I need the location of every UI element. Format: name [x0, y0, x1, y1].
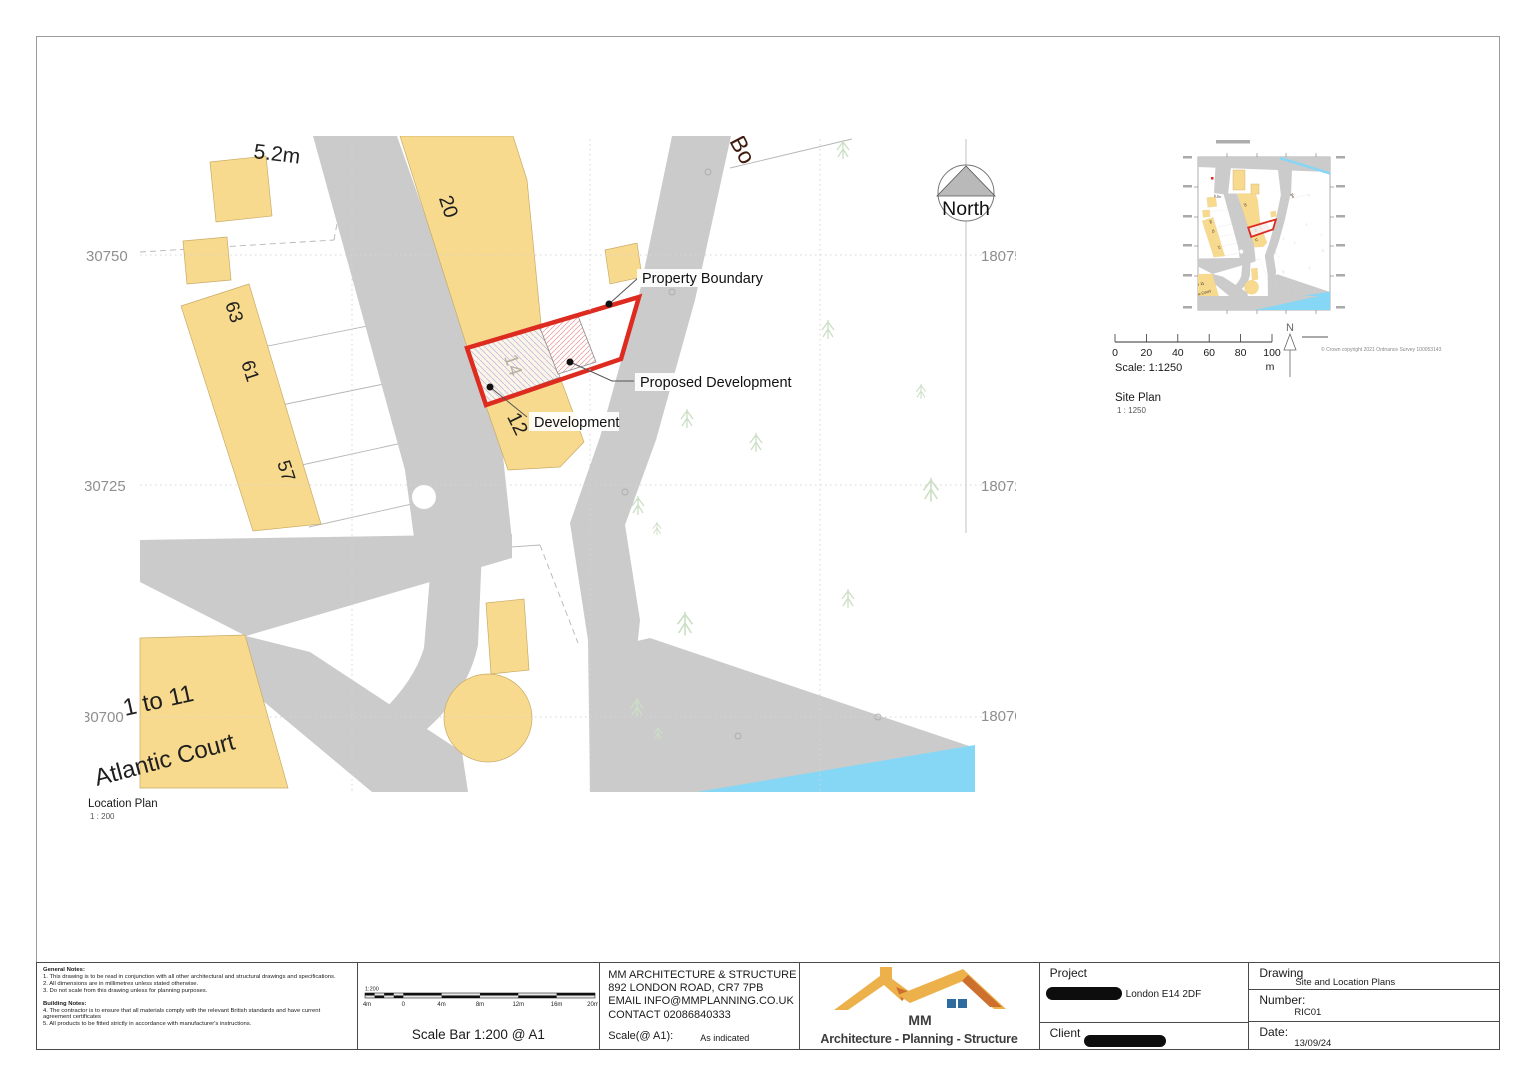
grid-label: 180750: [981, 248, 1016, 265]
scale-tick: 20m: [587, 1002, 598, 1008]
notes-panel: General Notes: 1. This drawing is to be …: [37, 963, 358, 1049]
company-email: EMAIL INFO@MMPLANNING.CO.UK: [608, 995, 799, 1008]
building-note: 5. All products to be fitted strictly in…: [43, 1021, 351, 1028]
grid-label: 180725: [981, 478, 1016, 495]
grid-label: 30700: [82, 709, 124, 726]
site-plan-scale: 1 : 1250: [1117, 406, 1146, 415]
inset-tick: 0: [1112, 347, 1118, 359]
general-note: 2. All dimensions are in millimetres unl…: [43, 981, 351, 988]
inset-tick: 40: [1172, 347, 1184, 359]
drawing-sheet: 5.2m 20 63 61 57 14 12 Bo 1 to 11 Atlant…: [0, 0, 1536, 1086]
scale-bar-graphic: 1:200 4m 0 4m 8m 12m 16m 20m: [362, 985, 598, 1019]
general-note: 3. Do not scale from this drawing unless…: [43, 988, 351, 995]
location-plan-caption: Location Plan: [88, 798, 158, 810]
company-logo-icon: MM Architecture - Planning - Structure: [800, 963, 1038, 1049]
date-row: Date: 13/09/24: [1249, 1022, 1499, 1049]
inset-scale-text: Scale: 1:1250: [1115, 362, 1182, 374]
drawing-number: RIC01: [1294, 1007, 1321, 1018]
project-panel: Project London E14 2DF Client: [1040, 963, 1250, 1049]
company-address: 892 LONDON ROAD, CR7 7PB: [608, 982, 799, 995]
property-boundary-label: Property Boundary: [642, 271, 764, 287]
scale-tick: 0: [401, 1002, 405, 1008]
grid-label: 30750: [86, 248, 128, 265]
building-note: 4. The contractor is to ensure that all …: [43, 1008, 351, 1015]
logo-name: MM: [908, 1012, 931, 1028]
redacted-client-name: [1084, 1035, 1166, 1047]
logo-tagline: Architecture - Planning - Structure: [820, 1032, 1017, 1046]
inset-scale-bar: 0 20 40 60 80 100 m Scale: 1:1250: [1112, 334, 1281, 374]
inset-unit: m: [1266, 361, 1275, 373]
sheet-scale-label: Scale(@ A1):: [608, 1030, 673, 1043]
project-address: London E14 2DF: [1126, 989, 1202, 1000]
title-block: General Notes: 1. This drawing is to be …: [36, 962, 1500, 1050]
drawing-date: 13/09/24: [1294, 1038, 1331, 1049]
logo-panel: MM Architecture - Planning - Structure: [800, 963, 1040, 1049]
inset-tick: 100: [1263, 347, 1281, 359]
inset-tick: 80: [1235, 347, 1247, 359]
grid-label: 30725: [84, 478, 126, 495]
number-row: Number: RIC01: [1249, 990, 1499, 1022]
building-notes-heading: Building Notes:: [43, 1001, 351, 1008]
drawing-row: Drawing Site and Location Plans: [1249, 963, 1499, 990]
scale-tick: 16m: [550, 1002, 562, 1008]
client-row: Client: [1040, 1023, 1249, 1049]
inset-tick: 20: [1141, 347, 1153, 359]
drawing-panel: Drawing Site and Location Plans Number: …: [1249, 963, 1499, 1049]
company-name: MM ARCHITECTURE & STRUCTURE: [608, 969, 799, 982]
location-plan-scale: 1 : 200: [90, 812, 115, 821]
redacted-project-name: [1046, 987, 1122, 1000]
site-plan-caption: Site Plan: [1115, 392, 1161, 404]
client-label: Client: [1050, 1026, 1081, 1040]
site-plan-inset: 0 20 40 60 80 100 m Scale: 1:1250 N © Cr…: [1100, 128, 1504, 428]
inset-north-letter: N: [1286, 322, 1294, 334]
number-label: Number:: [1259, 993, 1305, 1007]
general-notes-heading: General Notes:: [43, 967, 351, 974]
development-label: Development: [534, 415, 619, 431]
map-base: 5.2m 20 63 61 57 14 12 Bo 1 to 11 Atlant…: [92, 131, 975, 792]
scale-bar-ratio: 1:200: [365, 987, 379, 993]
scale-tick: 8m: [475, 1002, 483, 1008]
scale-bar-caption: Scale Bar 1:200 @ A1: [358, 1027, 600, 1042]
inset-micro-text: [1302, 336, 1328, 338]
north-arrow: North: [937, 139, 995, 533]
inset-copyright: © Crown copyright 2021 Ordnance Survey 1…: [1321, 346, 1442, 353]
north-label: North: [942, 198, 990, 220]
general-note: 1. This drawing is to be read in conjunc…: [43, 974, 351, 981]
inset-micro-title: [1216, 140, 1250, 144]
proposed-development-label: Proposed Development: [640, 375, 792, 391]
scale-tick: 12m: [512, 1002, 524, 1008]
sheet-scale-value: As indicated: [700, 1032, 749, 1045]
location-plan-map: 5.2m 20 63 61 57 14 12 Bo 1 to 11 Atlant…: [36, 36, 1016, 916]
project-label: Project: [1050, 966, 1087, 980]
inset-tick: 60: [1203, 347, 1215, 359]
road-notch: [412, 485, 436, 509]
scale-tick: 4m: [362, 1002, 370, 1008]
scale-tick: 4m: [437, 1002, 445, 1008]
company-contact: CONTACT 02086840333: [608, 1009, 799, 1022]
company-panel: MM ARCHITECTURE & STRUCTURE 892 LONDON R…: [600, 963, 800, 1049]
grid-label: 180700: [981, 708, 1016, 725]
building-note: agreement certificates: [43, 1014, 351, 1021]
drawing-title: Site and Location Plans: [1295, 977, 1395, 988]
project-row: Project London E14 2DF: [1040, 963, 1249, 1023]
scale-bar-panel: 1:200 4m 0 4m 8m 12m 16m 20m: [358, 963, 601, 1049]
date-label: Date:: [1259, 1025, 1288, 1039]
